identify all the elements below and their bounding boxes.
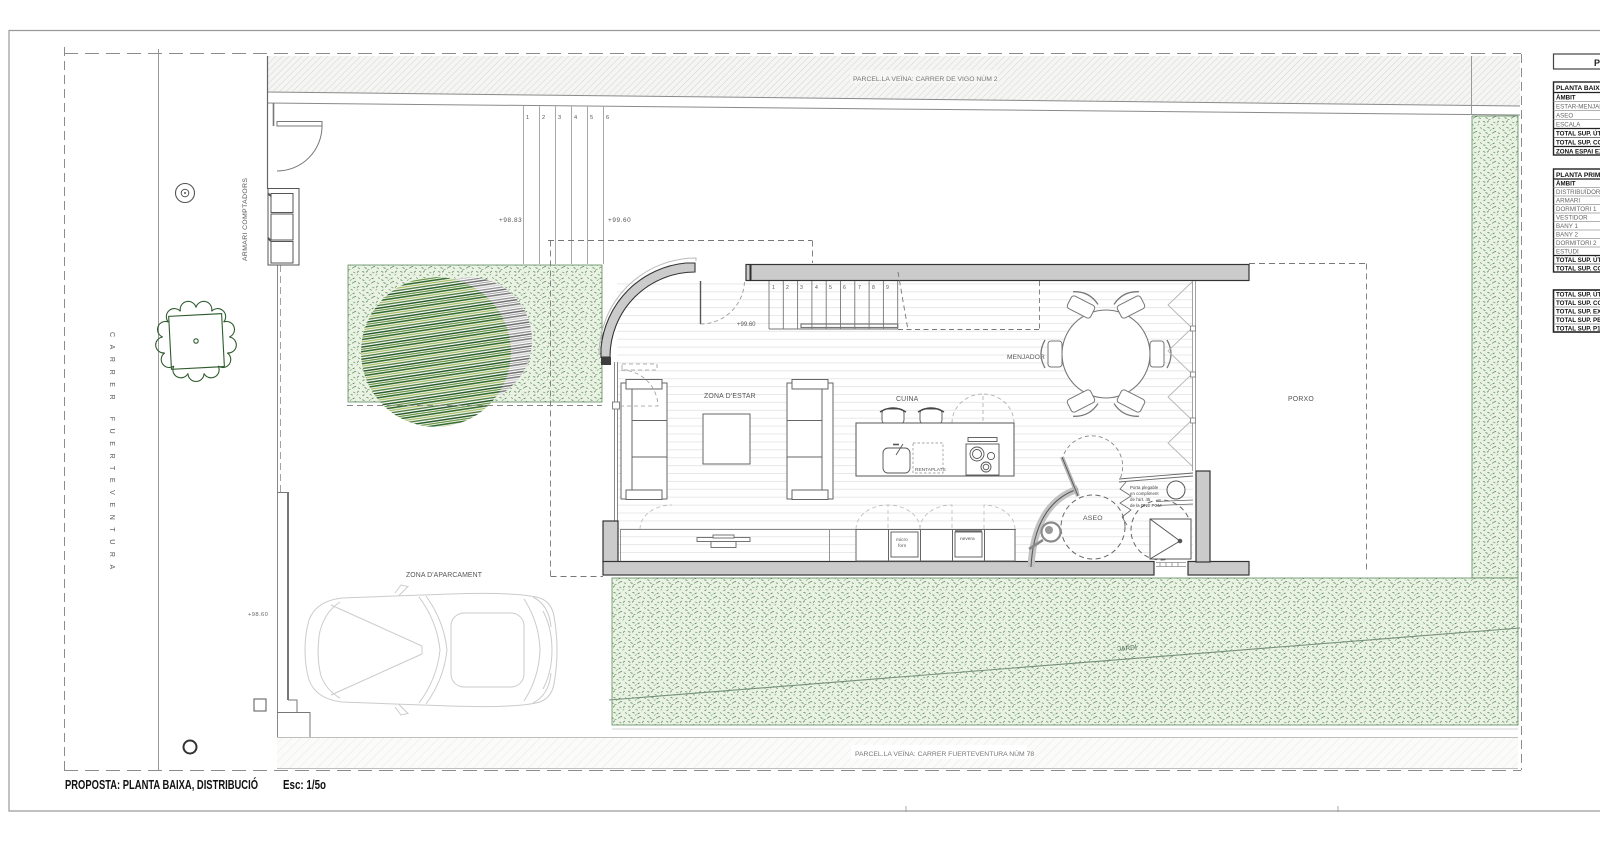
svg-text:TOTAL SUP. ÚTIL: TOTAL SUP. ÚTIL xyxy=(1556,257,1600,264)
svg-text:4: 4 xyxy=(815,285,818,291)
svg-text:8: 8 xyxy=(872,285,875,291)
svg-text:VESTIDOR: VESTIDOR xyxy=(1556,215,1588,222)
svg-text:CARRER FUERTEVENTURA: CARRER FUERTEVENTURA xyxy=(108,332,115,577)
svg-text:BANY 1: BANY 1 xyxy=(1556,223,1578,230)
svg-text:BANY 2: BANY 2 xyxy=(1556,232,1578,239)
svg-text:5: 5 xyxy=(590,115,593,121)
svg-text:DISTRIBUÏDOR: DISTRIBUÏDOR xyxy=(1556,189,1600,196)
svg-text:PLANTA BAIXA: PLANTA BAIXA xyxy=(1556,85,1600,92)
svg-text:PARCEL.LA VEÏNA: CARRER FUERTE: PARCEL.LA VEÏNA: CARRER FUERTEVENTURA NÚ… xyxy=(855,749,1034,758)
svg-text:TOTAL SUP. CONS: TOTAL SUP. CONS xyxy=(1556,140,1600,147)
svg-text:en compliment: en compliment xyxy=(1130,491,1159,496)
svg-text:TOTAL SUP. EXT: TOTAL SUP. EXT xyxy=(1556,309,1600,316)
svg-text:4: 4 xyxy=(574,115,577,121)
svg-text:6: 6 xyxy=(843,285,846,291)
svg-text:TOTAL SUP. CONS: TOTAL SUP. CONS xyxy=(1556,300,1600,307)
svg-text:PLANTA PRIMERA: PLANTA PRIMERA xyxy=(1556,172,1600,179)
svg-text:ZONA ESPAI EXT: ZONA ESPAI EXT xyxy=(1556,149,1600,156)
svg-text:6: 6 xyxy=(606,115,609,121)
svg-text:de l'art. 45: de l'art. 45 xyxy=(1130,497,1151,502)
svg-text:Porta plegable: Porta plegable xyxy=(1130,485,1159,490)
svg-text:forn: forn xyxy=(898,543,907,549)
svg-text:ÀMBIT: ÀMBIT xyxy=(1556,95,1576,102)
svg-text:ZONA D'APARCAMENT: ZONA D'APARCAMENT xyxy=(406,572,483,579)
svg-text:RENTAPLATS: RENTAPLATS xyxy=(915,467,946,473)
svg-text:ZONA D'ESTAR: ZONA D'ESTAR xyxy=(704,393,756,400)
svg-text:Esc: 1/5o: Esc: 1/5o xyxy=(283,777,326,792)
svg-text:ARMARI COMPTADORS: ARMARI COMPTADORS xyxy=(242,178,249,261)
svg-text:DORMITORI 1: DORMITORI 1 xyxy=(1556,206,1597,213)
svg-text:P: P xyxy=(1594,58,1600,68)
svg-text:TOTAL SUP. CONS: TOTAL SUP. CONS xyxy=(1556,266,1600,273)
svg-text:nevera: nevera xyxy=(960,536,975,542)
svg-text:ESTAR-MENJADOR: ESTAR-MENJADOR xyxy=(1556,104,1600,111)
svg-text:+98.60: +98.60 xyxy=(248,612,268,618)
svg-text:ÀMBIT: ÀMBIT xyxy=(1556,181,1576,188)
svg-text:PROPOSTA: PLANTA BAIXA, DISTRI: PROPOSTA: PLANTA BAIXA, DISTRIBUCIÓ xyxy=(65,777,258,792)
svg-text:TOTAL SUP. ÚTIL: TOTAL SUP. ÚTIL xyxy=(1556,292,1600,299)
svg-text:1: 1 xyxy=(772,285,775,291)
svg-text:5: 5 xyxy=(829,285,832,291)
svg-text:3: 3 xyxy=(800,285,803,291)
svg-text:ASEO: ASEO xyxy=(1556,113,1573,120)
svg-text:+99.60: +99.60 xyxy=(608,217,631,224)
svg-text:ESCALA: ESCALA xyxy=(1556,122,1581,129)
svg-text:TOTAL SUP. ÚTIL: TOTAL SUP. ÚTIL xyxy=(1556,131,1600,138)
svg-text:CUINA: CUINA xyxy=(896,396,919,403)
svg-text:2: 2 xyxy=(786,285,789,291)
svg-text:ESTUDI: ESTUDI xyxy=(1556,249,1579,256)
svg-text:2: 2 xyxy=(542,115,545,121)
svg-text:DORMITORI 2: DORMITORI 2 xyxy=(1556,240,1597,247)
svg-text:+98.83: +98.83 xyxy=(499,217,522,224)
svg-text:TOTAL SUP. P1: TOTAL SUP. P1 xyxy=(1556,326,1600,333)
svg-text:MENJADOR: MENJADOR xyxy=(1007,354,1045,361)
svg-text:PARCEL.LA VEÏNA: CARRER DE VIG: PARCEL.LA VEÏNA: CARRER DE VIGO NÚM 2 xyxy=(853,74,998,83)
svg-text:7: 7 xyxy=(858,285,861,291)
svg-text:micro: micro xyxy=(896,537,908,543)
svg-text:9: 9 xyxy=(886,285,889,291)
svg-text:1: 1 xyxy=(526,115,529,121)
svg-text:ARMARI: ARMARI xyxy=(1556,198,1580,205)
svg-text:ASEO: ASEO xyxy=(1083,515,1103,522)
svg-text:PORXO: PORXO xyxy=(1288,396,1314,403)
svg-text:3: 3 xyxy=(558,115,561,121)
svg-text:+99.60: +99.60 xyxy=(737,322,756,328)
svg-text:TOTAL SUP. PB: TOTAL SUP. PB xyxy=(1556,317,1600,324)
